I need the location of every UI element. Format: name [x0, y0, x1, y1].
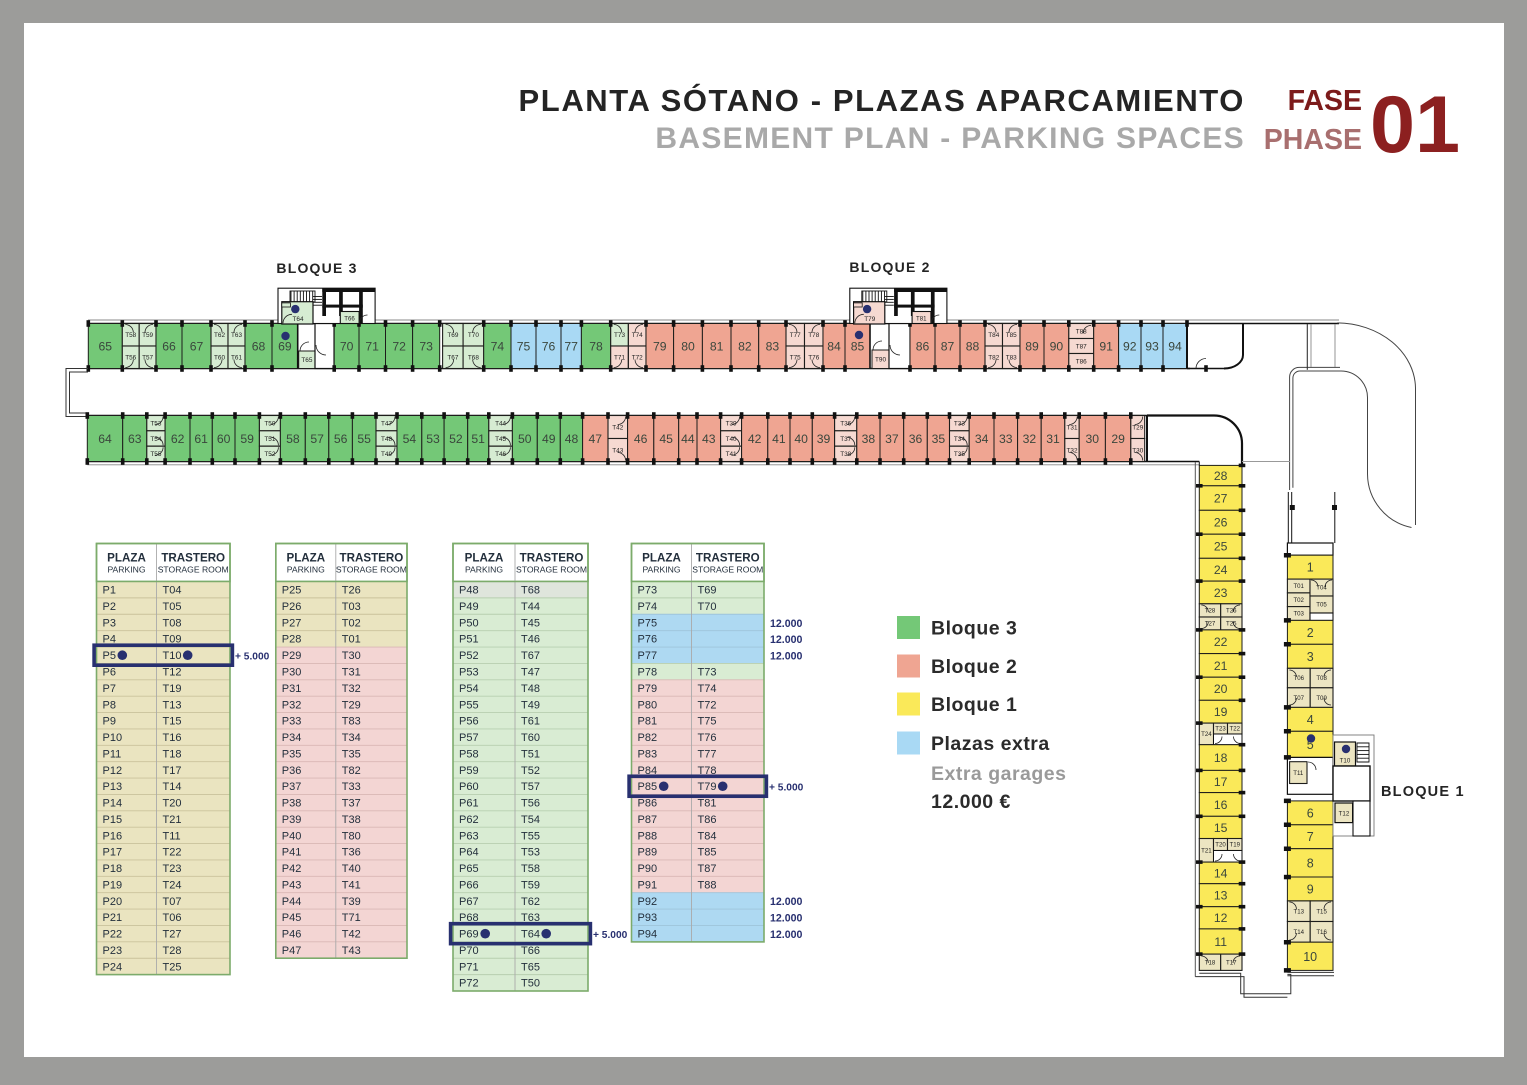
svg-text:29: 29 — [1111, 432, 1125, 446]
svg-text:31: 31 — [1046, 432, 1060, 446]
svg-text:T67: T67 — [447, 355, 458, 362]
svg-text:P10: P10 — [103, 732, 123, 744]
svg-text:P37: P37 — [282, 781, 302, 793]
svg-text:P89: P89 — [638, 847, 658, 859]
svg-text:P54: P54 — [459, 683, 479, 695]
svg-text:Bloque 3: Bloque 3 — [931, 618, 1017, 640]
svg-text:BLOQUE 2: BLOQUE 2 — [849, 259, 930, 275]
svg-text:T37: T37 — [840, 436, 851, 443]
svg-text:69: 69 — [278, 339, 292, 353]
svg-text:87: 87 — [941, 339, 955, 353]
svg-text:STORAGE ROOM: STORAGE ROOM — [336, 565, 407, 575]
svg-text:TRASTERO: TRASTERO — [696, 552, 760, 565]
svg-text:T48: T48 — [521, 683, 540, 695]
svg-text:P46: P46 — [282, 929, 302, 941]
svg-text:T85: T85 — [1006, 332, 1017, 339]
svg-text:T43: T43 — [342, 945, 361, 957]
svg-text:12.000 €: 12.000 € — [931, 791, 1011, 813]
svg-text:BASEMENT PLAN - PARKING SPACES: BASEMENT PLAN - PARKING SPACES — [655, 122, 1245, 155]
svg-text:T67: T67 — [521, 650, 540, 662]
svg-text:51: 51 — [471, 432, 485, 446]
svg-text:12.000: 12.000 — [770, 913, 803, 925]
svg-text:T36: T36 — [342, 847, 361, 859]
svg-text:47: 47 — [589, 432, 603, 446]
svg-text:T03: T03 — [1293, 611, 1304, 618]
svg-text:T26: T26 — [342, 585, 361, 597]
svg-text:T15: T15 — [163, 716, 182, 728]
svg-text:T74: T74 — [698, 683, 717, 695]
svg-text:TRASTERO: TRASTERO — [161, 552, 225, 565]
svg-text:P67: P67 — [459, 896, 479, 908]
svg-text:T50: T50 — [521, 978, 540, 990]
svg-text:P58: P58 — [459, 748, 479, 760]
svg-text:P48: P48 — [459, 585, 479, 597]
svg-text:P65: P65 — [459, 863, 479, 875]
svg-text:Bloque 2: Bloque 2 — [931, 656, 1017, 678]
svg-text:P59: P59 — [459, 765, 479, 777]
svg-text:34: 34 — [975, 432, 989, 446]
svg-text:20: 20 — [1214, 682, 1228, 696]
svg-text:85: 85 — [851, 339, 865, 353]
svg-text:PLAZA: PLAZA — [465, 552, 504, 565]
svg-text:41: 41 — [772, 432, 786, 446]
svg-text:P78: P78 — [638, 667, 658, 679]
svg-text:P45: P45 — [282, 912, 302, 924]
svg-text:83: 83 — [766, 339, 780, 353]
svg-text:T55: T55 — [521, 830, 540, 842]
svg-text:P12: P12 — [103, 765, 123, 777]
svg-text:T75: T75 — [790, 355, 801, 362]
svg-text:T87: T87 — [1076, 343, 1087, 350]
svg-text:T69: T69 — [447, 332, 458, 339]
svg-text:P3: P3 — [103, 617, 116, 629]
svg-text:T80: T80 — [342, 830, 361, 842]
svg-text:T24: T24 — [163, 879, 182, 891]
svg-text:T23: T23 — [163, 863, 182, 875]
svg-text:P86: P86 — [638, 798, 658, 810]
svg-text:36: 36 — [909, 432, 923, 446]
svg-text:P77: P77 — [638, 650, 658, 662]
svg-text:T78: T78 — [808, 332, 819, 339]
svg-text:P8: P8 — [103, 699, 116, 711]
svg-text:T61: T61 — [231, 355, 242, 362]
svg-text:P26: P26 — [282, 601, 302, 613]
svg-text:T34: T34 — [342, 732, 361, 744]
svg-text:P52: P52 — [459, 650, 479, 662]
svg-text:P33: P33 — [282, 716, 302, 728]
svg-text:T19: T19 — [163, 683, 182, 695]
svg-text:TRASTERO: TRASTERO — [340, 552, 404, 565]
svg-text:27: 27 — [1214, 491, 1228, 505]
svg-text:T83: T83 — [1006, 355, 1017, 362]
svg-text:T10: T10 — [163, 650, 182, 662]
svg-text:1: 1 — [1307, 561, 1314, 575]
svg-text:49: 49 — [542, 432, 556, 446]
svg-text:63: 63 — [128, 432, 142, 446]
svg-text:94: 94 — [1168, 339, 1182, 353]
svg-text:T53: T53 — [150, 421, 161, 428]
svg-text:T85: T85 — [698, 847, 717, 859]
svg-text:35: 35 — [932, 432, 946, 446]
svg-text:8: 8 — [1307, 856, 1314, 870]
svg-text:T35: T35 — [954, 451, 965, 458]
svg-text:T08: T08 — [1316, 675, 1327, 682]
svg-text:P1: P1 — [103, 585, 116, 597]
svg-text:P76: P76 — [638, 634, 658, 646]
svg-text:Bloque 1: Bloque 1 — [931, 694, 1017, 716]
svg-text:T69: T69 — [698, 585, 717, 597]
svg-text:P50: P50 — [459, 617, 479, 629]
svg-text:T64: T64 — [521, 929, 540, 941]
svg-text:P19: P19 — [103, 879, 123, 891]
svg-text:P25: P25 — [282, 585, 302, 597]
svg-text:22: 22 — [1214, 635, 1228, 649]
svg-text:T81: T81 — [698, 798, 717, 810]
svg-text:T35: T35 — [342, 748, 361, 760]
svg-text:T58: T58 — [521, 863, 540, 875]
svg-text:T72: T72 — [632, 355, 643, 362]
svg-text:T66: T66 — [344, 316, 355, 323]
svg-text:T56: T56 — [125, 355, 136, 362]
svg-text:T84: T84 — [698, 830, 717, 842]
svg-text:T22: T22 — [1230, 726, 1241, 733]
svg-text:18: 18 — [1214, 751, 1228, 765]
svg-text:T74: T74 — [632, 332, 643, 339]
svg-text:P63: P63 — [459, 830, 479, 842]
svg-text:T07: T07 — [163, 896, 182, 908]
svg-text:T24: T24 — [1201, 731, 1212, 738]
svg-text:T12: T12 — [163, 667, 182, 679]
svg-text:P9: P9 — [103, 716, 116, 728]
svg-text:37: 37 — [885, 432, 899, 446]
svg-text:33: 33 — [999, 432, 1013, 446]
svg-text:T31: T31 — [342, 667, 361, 679]
svg-text:70: 70 — [340, 339, 354, 353]
svg-text:P75: P75 — [638, 617, 658, 629]
svg-text:T28: T28 — [1205, 608, 1216, 615]
svg-text:+ 5.000: + 5.000 — [593, 930, 628, 941]
svg-text:T60: T60 — [521, 732, 540, 744]
svg-text:61: 61 — [194, 432, 208, 446]
svg-text:24: 24 — [1214, 563, 1228, 577]
svg-text:T51: T51 — [264, 436, 275, 443]
svg-text:32: 32 — [1023, 432, 1037, 446]
svg-text:P43: P43 — [282, 879, 302, 891]
svg-text:T23: T23 — [1215, 726, 1226, 733]
svg-text:T79: T79 — [698, 781, 717, 793]
svg-text:T64: T64 — [292, 316, 303, 323]
svg-text:P83: P83 — [638, 748, 658, 760]
svg-text:82: 82 — [738, 339, 752, 353]
svg-text:+ 5.000: + 5.000 — [769, 783, 804, 794]
svg-text:12.000: 12.000 — [770, 929, 803, 941]
svg-text:T17: T17 — [163, 765, 182, 777]
svg-text:T13: T13 — [163, 699, 182, 711]
svg-text:P18: P18 — [103, 863, 123, 875]
svg-text:T54: T54 — [521, 814, 540, 826]
svg-text:T05: T05 — [1316, 602, 1327, 609]
svg-text:28: 28 — [1214, 469, 1228, 483]
svg-text:58: 58 — [286, 432, 300, 446]
svg-text:64: 64 — [98, 432, 112, 446]
svg-text:60: 60 — [217, 432, 231, 446]
svg-text:T22: T22 — [163, 847, 182, 859]
svg-text:P53: P53 — [459, 667, 479, 679]
svg-text:T84: T84 — [988, 332, 999, 339]
svg-text:T49: T49 — [521, 699, 540, 711]
svg-text:T12: T12 — [1339, 811, 1350, 818]
svg-text:T62: T62 — [521, 896, 540, 908]
svg-text:55: 55 — [357, 432, 371, 446]
svg-text:30: 30 — [1086, 432, 1100, 446]
svg-text:P17: P17 — [103, 847, 123, 859]
svg-text:P35: P35 — [282, 748, 302, 760]
svg-text:12.000: 12.000 — [770, 618, 803, 630]
svg-text:T06: T06 — [163, 912, 182, 924]
svg-text:T09: T09 — [1316, 695, 1327, 702]
svg-text:T68: T68 — [468, 355, 479, 362]
svg-text:T40: T40 — [726, 436, 737, 443]
svg-text:59: 59 — [240, 432, 254, 446]
svg-text:T57: T57 — [521, 781, 540, 793]
svg-text:12: 12 — [1214, 911, 1228, 925]
svg-text:P81: P81 — [638, 716, 658, 728]
svg-text:T65: T65 — [521, 961, 540, 973]
svg-text:48: 48 — [565, 432, 579, 446]
svg-text:T11: T11 — [1293, 770, 1304, 777]
svg-text:P64: P64 — [459, 847, 479, 859]
svg-text:53: 53 — [426, 432, 440, 446]
svg-text:STORAGE ROOM: STORAGE ROOM — [158, 565, 229, 575]
svg-text:P34: P34 — [282, 732, 302, 744]
svg-text:45: 45 — [659, 432, 673, 446]
svg-text:T21: T21 — [1201, 848, 1212, 855]
svg-text:T05: T05 — [163, 601, 182, 613]
svg-text:P61: P61 — [459, 798, 479, 810]
svg-text:T79: T79 — [864, 316, 875, 323]
svg-text:40: 40 — [794, 432, 808, 446]
svg-text:T31: T31 — [1066, 424, 1077, 431]
svg-text:T88: T88 — [698, 879, 717, 891]
svg-text:P55: P55 — [459, 699, 479, 711]
svg-text:P14: P14 — [103, 798, 123, 810]
svg-text:11: 11 — [1214, 935, 1227, 949]
svg-text:P87: P87 — [638, 814, 658, 826]
svg-text:81: 81 — [710, 339, 724, 353]
svg-text:T15: T15 — [1316, 908, 1327, 915]
svg-text:01: 01 — [1370, 80, 1460, 170]
svg-text:T56: T56 — [521, 798, 540, 810]
svg-text:12.000: 12.000 — [770, 896, 803, 908]
svg-text:T47: T47 — [521, 667, 540, 679]
svg-text:65: 65 — [99, 339, 113, 353]
svg-text:P60: P60 — [459, 781, 479, 793]
svg-text:P57: P57 — [459, 732, 479, 744]
svg-text:T41: T41 — [342, 879, 361, 891]
svg-text:T01: T01 — [342, 634, 361, 646]
svg-text:P6: P6 — [103, 667, 116, 679]
svg-text:50: 50 — [518, 432, 532, 446]
svg-text:93: 93 — [1145, 339, 1159, 353]
svg-text:21: 21 — [1214, 659, 1228, 673]
svg-text:3: 3 — [1307, 650, 1314, 664]
svg-text:T08: T08 — [163, 617, 182, 629]
svg-text:BLOQUE 1: BLOQUE 1 — [1381, 784, 1465, 800]
svg-text:PLAZA: PLAZA — [642, 552, 681, 565]
svg-text:73: 73 — [419, 339, 433, 353]
svg-text:74: 74 — [491, 339, 505, 353]
svg-text:91: 91 — [1099, 339, 1113, 353]
svg-text:75: 75 — [517, 339, 531, 353]
svg-text:P72: P72 — [459, 978, 479, 990]
svg-text:T20: T20 — [1215, 842, 1226, 849]
svg-text:T75: T75 — [698, 716, 717, 728]
svg-text:P24: P24 — [103, 961, 123, 973]
svg-text:P80: P80 — [638, 699, 658, 711]
svg-text:T63: T63 — [231, 332, 242, 339]
svg-text:P27: P27 — [282, 617, 302, 629]
svg-text:T28: T28 — [163, 945, 182, 957]
svg-text:67: 67 — [190, 339, 204, 353]
svg-text:P74: P74 — [638, 601, 658, 613]
svg-text:39: 39 — [817, 432, 831, 446]
svg-text:T18: T18 — [1205, 959, 1216, 966]
svg-text:T58: T58 — [125, 332, 136, 339]
svg-text:T39: T39 — [342, 896, 361, 908]
svg-text:71: 71 — [365, 339, 379, 353]
svg-text:PARKING: PARKING — [107, 565, 145, 575]
svg-text:T29: T29 — [1132, 424, 1143, 431]
svg-text:P44: P44 — [282, 896, 302, 908]
svg-text:Plazas extra: Plazas extra — [931, 733, 1050, 755]
svg-text:T04: T04 — [163, 585, 182, 597]
svg-text:T45: T45 — [521, 617, 540, 629]
svg-text:T27: T27 — [163, 929, 182, 941]
svg-text:T76: T76 — [698, 732, 717, 744]
svg-text:T21: T21 — [163, 814, 182, 826]
svg-text:T87: T87 — [698, 863, 717, 875]
svg-text:T53: T53 — [521, 847, 540, 859]
svg-text:P56: P56 — [459, 716, 479, 728]
svg-text:T68: T68 — [521, 585, 540, 597]
svg-text:90: 90 — [1050, 339, 1064, 353]
svg-text:T77: T77 — [698, 748, 717, 760]
svg-text:72: 72 — [392, 339, 406, 353]
svg-text:P11: P11 — [103, 748, 122, 760]
svg-text:T06: T06 — [1294, 675, 1305, 682]
svg-text:P49: P49 — [459, 601, 479, 613]
svg-text:T13: T13 — [1294, 908, 1305, 915]
svg-text:PARKING: PARKING — [465, 565, 503, 575]
svg-text:T33: T33 — [954, 421, 965, 428]
svg-text:76: 76 — [542, 339, 556, 353]
svg-text:T88: T88 — [1076, 328, 1087, 335]
svg-text:T18: T18 — [163, 748, 182, 760]
svg-text:T37: T37 — [342, 798, 361, 810]
svg-text:P13: P13 — [103, 781, 123, 793]
svg-text:P2: P2 — [103, 601, 116, 613]
svg-text:STORAGE ROOM: STORAGE ROOM — [692, 565, 763, 575]
svg-text:T82: T82 — [342, 765, 361, 777]
svg-text:T45: T45 — [495, 436, 506, 443]
svg-text:P39: P39 — [282, 814, 302, 826]
svg-text:T01: T01 — [1293, 583, 1304, 590]
svg-text:P30: P30 — [282, 667, 302, 679]
svg-text:26: 26 — [1214, 516, 1228, 530]
svg-text:80: 80 — [681, 339, 695, 353]
svg-text:2: 2 — [1307, 626, 1314, 640]
svg-text:4: 4 — [1307, 713, 1314, 727]
svg-text:T07: T07 — [1294, 695, 1305, 702]
svg-text:T42: T42 — [612, 424, 623, 431]
svg-text:PLAZA: PLAZA — [286, 552, 325, 565]
svg-text:P15: P15 — [103, 814, 123, 826]
svg-text:7: 7 — [1307, 830, 1314, 844]
svg-text:P90: P90 — [638, 863, 658, 875]
svg-text:T17: T17 — [1226, 959, 1237, 966]
svg-text:T52: T52 — [521, 765, 540, 777]
svg-text:+ 5.000: + 5.000 — [235, 652, 270, 663]
svg-text:P21: P21 — [103, 912, 123, 924]
svg-text:P5: P5 — [103, 650, 116, 662]
svg-text:T90: T90 — [875, 357, 886, 364]
svg-text:P94: P94 — [638, 929, 658, 941]
svg-text:P85: P85 — [638, 781, 658, 793]
svg-text:6: 6 — [1307, 806, 1314, 820]
svg-text:T81: T81 — [916, 316, 927, 323]
svg-text:T44: T44 — [521, 601, 540, 613]
svg-text:P36: P36 — [282, 765, 302, 777]
svg-text:43: 43 — [702, 432, 716, 446]
svg-text:66: 66 — [162, 339, 176, 353]
svg-text:86: 86 — [916, 339, 930, 353]
svg-text:T20: T20 — [163, 798, 182, 810]
svg-text:56: 56 — [334, 432, 348, 446]
svg-text:T40: T40 — [342, 863, 361, 875]
svg-text:T02: T02 — [342, 617, 361, 629]
svg-text:T62: T62 — [214, 332, 225, 339]
svg-text:16: 16 — [1214, 798, 1228, 812]
svg-text:44: 44 — [681, 432, 695, 446]
svg-text:FASE: FASE — [1288, 85, 1362, 117]
svg-text:T86: T86 — [698, 814, 717, 826]
svg-text:78: 78 — [589, 339, 603, 353]
svg-text:77: 77 — [564, 339, 578, 353]
svg-text:T86: T86 — [1076, 358, 1087, 365]
svg-text:P91: P91 — [638, 879, 658, 891]
svg-text:P51: P51 — [459, 634, 479, 646]
svg-text:89: 89 — [1025, 339, 1039, 353]
svg-text:PARKING: PARKING — [642, 565, 680, 575]
svg-text:T57: T57 — [142, 355, 153, 362]
svg-text:T66: T66 — [521, 945, 540, 957]
svg-text:13: 13 — [1214, 889, 1228, 903]
svg-text:P32: P32 — [282, 699, 302, 711]
svg-text:14: 14 — [1214, 866, 1228, 880]
svg-text:P7: P7 — [103, 683, 116, 695]
svg-text:42: 42 — [748, 432, 762, 446]
svg-text:P23: P23 — [103, 945, 123, 957]
svg-text:P42: P42 — [282, 863, 302, 875]
svg-text:P70: P70 — [459, 945, 479, 957]
svg-text:P71: P71 — [459, 961, 479, 973]
svg-text:T42: T42 — [342, 929, 361, 941]
svg-text:T59: T59 — [142, 332, 153, 339]
svg-text:T43: T43 — [612, 447, 623, 454]
svg-text:T83: T83 — [342, 716, 361, 728]
svg-text:P88: P88 — [638, 830, 658, 842]
svg-text:T19: T19 — [1230, 842, 1241, 849]
